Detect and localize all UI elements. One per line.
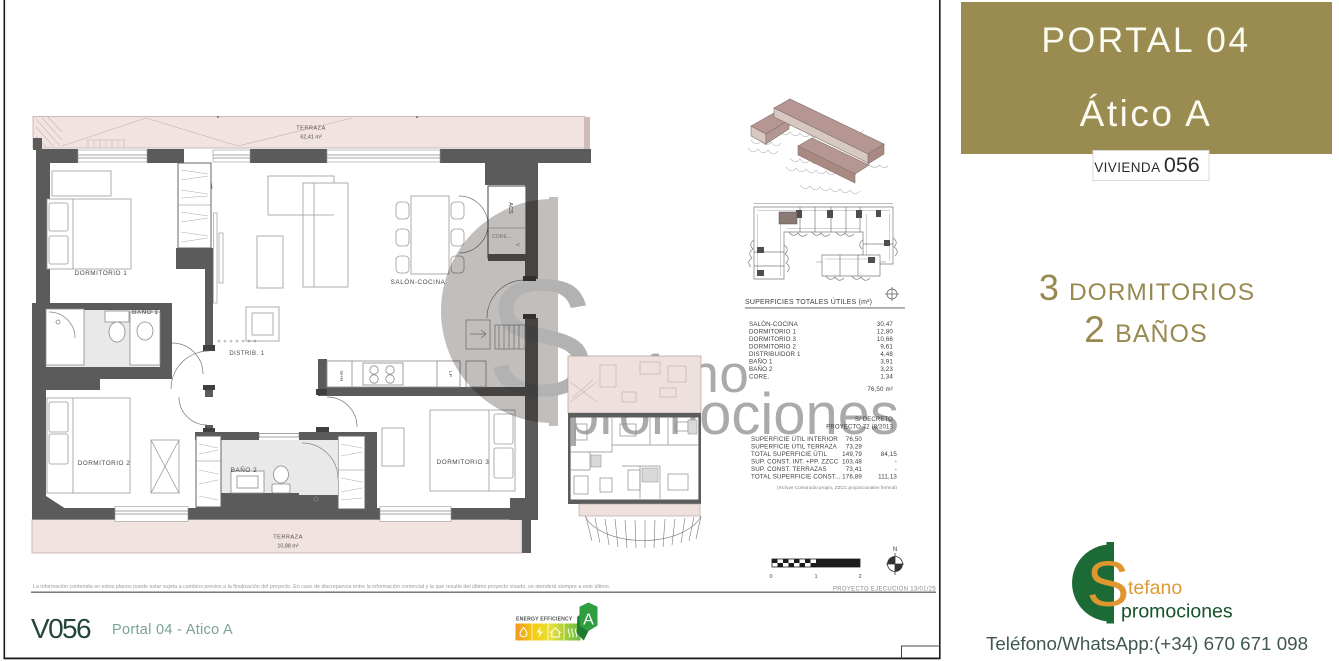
svg-text:3 DORMITORIOS: 3 DORMITORIOS — [1039, 267, 1255, 308]
svg-text:-: - — [895, 459, 897, 466]
svg-text:149,79: 149,79 — [842, 451, 862, 458]
svg-text:9,61: 9,61 — [880, 344, 893, 351]
svg-text:76,50 m²: 76,50 m² — [867, 386, 893, 393]
svg-text:PROYECTO 72 (8/2013: PROYECTO 72 (8/2013 — [826, 425, 893, 431]
svg-text:3,23: 3,23 — [880, 366, 893, 373]
svg-text:DORMITORIO 2: DORMITORIO 2 — [78, 460, 131, 467]
svg-text:76,50: 76,50 — [846, 436, 863, 443]
svg-text:Portal 04 - Atico A: Portal 04 - Atico A — [112, 622, 233, 638]
svg-text:4,48: 4,48 — [880, 351, 893, 358]
svg-text:S/ DECRETO: S/ DECRETO — [855, 417, 893, 423]
svg-text:84,15: 84,15 — [881, 451, 898, 458]
svg-text:DORMITORIO 1: DORMITORIO 1 — [75, 270, 128, 277]
svg-text:CORE.: CORE. — [749, 374, 769, 381]
svg-text:(Incluye Construido propio, ZZ: (Incluye Construido propio, ZZCC proporc… — [777, 485, 897, 490]
svg-text:2 BAÑOS: 2 BAÑOS — [1084, 309, 1207, 350]
svg-text:SUPERFICIES TOTALES ÚTILES (m²: SUPERFICIES TOTALES ÚTILES (m²) — [745, 297, 872, 306]
svg-text:30,47: 30,47 — [877, 321, 894, 328]
svg-text:SUPERFICIE ÚTIL INTERIOR: SUPERFICIE ÚTIL INTERIOR — [751, 436, 838, 443]
svg-text:1: 1 — [814, 574, 817, 580]
svg-text:TERRAZA: TERRAZA — [296, 126, 326, 132]
svg-text:Ático A: Ático A — [1080, 93, 1213, 134]
svg-text:12,80: 12,80 — [877, 329, 894, 336]
svg-text:73,29: 73,29 — [846, 444, 863, 451]
svg-text:2: 2 — [858, 574, 861, 580]
svg-text:0: 0 — [769, 574, 772, 580]
svg-text:TOTAL SUPERFICIE ÚTIL: TOTAL SUPERFICIE ÚTIL — [751, 451, 828, 458]
svg-text:SUP. CONST. INT. +PP. ZZCC: SUP. CONST. INT. +PP. ZZCC — [751, 459, 839, 466]
svg-text:ENERGY EFFICIENCY: ENERGY EFFICIENCY — [516, 617, 573, 623]
svg-text:DORMITORIO 3: DORMITORIO 3 — [437, 459, 490, 466]
svg-text:SUPERFICIE ÚTIL TERRAZA: SUPERFICIE ÚTIL TERRAZA — [751, 444, 838, 451]
svg-text:Teléfono/WhatsApp:(+34) 670 67: Teléfono/WhatsApp:(+34) 670 671 098 — [986, 633, 1308, 654]
svg-text:BAÑO 2: BAÑO 2 — [231, 465, 257, 474]
svg-text:BAÑO 1: BAÑO 1 — [132, 307, 158, 316]
svg-text:SUP. CONST. TERRAZAS: SUP. CONST. TERRAZAS — [751, 466, 827, 473]
svg-text:111,13: 111,13 — [878, 474, 897, 481]
svg-text:62,41 m²: 62,41 m² — [300, 135, 321, 141]
svg-text:DORMITORIO 2: DORMITORIO 2 — [749, 344, 796, 351]
svg-text:TOTAL SUPERFICIE CONST...: TOTAL SUPERFICIE CONST... — [751, 474, 841, 481]
svg-text:TERRAZA: TERRAZA — [273, 535, 303, 541]
svg-text:V056: V056 — [31, 613, 91, 644]
svg-text:LP: LP — [447, 371, 453, 377]
svg-text:PORTAL 04: PORTAL 04 — [1041, 20, 1250, 60]
svg-text:La información contenida en es: La información contenida en estos planos… — [33, 584, 610, 590]
svg-text:1,34: 1,34 — [880, 374, 893, 381]
svg-text:N: N — [893, 547, 897, 553]
svg-text:DISTRIBUIDOR 1: DISTRIBUIDOR 1 — [749, 351, 801, 358]
svg-text:DISTRIB. 1: DISTRIB. 1 — [229, 351, 265, 357]
svg-text:W+H: W+H — [338, 371, 344, 382]
svg-text:DORMITORIO 3: DORMITORIO 3 — [749, 336, 796, 343]
svg-text:10,88 m²: 10,88 m² — [277, 544, 298, 550]
svg-text:promociones: promociones — [1121, 601, 1233, 623]
svg-text:176,89: 176,89 — [842, 474, 862, 481]
svg-text:A: A — [583, 612, 594, 629]
svg-text:BAÑO 2: BAÑO 2 — [749, 366, 773, 373]
svg-text:-: - — [895, 466, 897, 473]
svg-text:tefano: tefano — [1128, 577, 1182, 599]
svg-text:73,41: 73,41 — [846, 466, 863, 473]
svg-text:DORMITORIO 1: DORMITORIO 1 — [749, 329, 796, 336]
svg-text:SALÓN-COCINA: SALÓN-COCINA — [749, 321, 799, 328]
svg-text:103,48: 103,48 — [842, 459, 862, 466]
svg-text:10,66: 10,66 — [877, 336, 894, 343]
svg-text:BAÑO 1: BAÑO 1 — [749, 359, 773, 366]
svg-text:SALÓN-COCINA: SALÓN-COCINA — [391, 277, 446, 286]
svg-text:3,91: 3,91 — [880, 359, 893, 366]
svg-text:PROYECTO EJECUCIÓN 13/01/25: PROYECTO EJECUCIÓN 13/01/25 — [833, 586, 936, 593]
